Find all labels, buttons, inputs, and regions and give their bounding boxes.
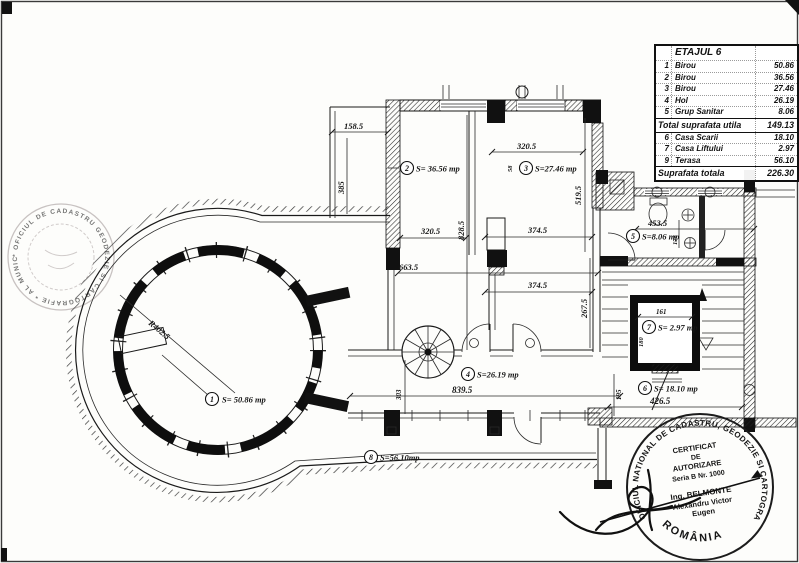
dim-374-5-b: 374.5	[527, 280, 548, 290]
dim-161: 161	[656, 308, 667, 316]
window	[440, 101, 487, 110]
room-area: S= 2.97 mp	[658, 323, 698, 333]
room-number: 2	[404, 164, 409, 173]
table-subtotal-row: Total suprafata utila 149.13	[656, 118, 797, 132]
left-stamp-ring-text: * OFICIUL DE CADASTRU GEODEZIE SI CARTOG…	[0, 0, 110, 306]
row-num: 5	[656, 108, 671, 116]
table-row: 4 Hol 26.19	[656, 95, 797, 107]
sink-fixture	[685, 238, 696, 249]
row-name: Hol	[671, 96, 755, 107]
row-num: 7	[656, 145, 671, 153]
row-num: 9	[656, 157, 671, 165]
area-schedule-table: ETAJUL 6 1 Birou 50.86 2 Birou 36.56 3 B…	[654, 44, 799, 182]
dim-320-5-top: 320.5	[516, 141, 537, 151]
row-num: 2	[656, 74, 671, 82]
table-row: 9 Terasa 56.10	[656, 155, 797, 167]
subtotal-value: 149.13	[755, 119, 797, 132]
scan-artifact	[2, 2, 12, 14]
row-value: 18.10	[755, 133, 797, 144]
dim-158-5: 158.5	[344, 121, 364, 131]
room-area: S=26.19 mp	[477, 370, 519, 380]
room-label-7: 7 S= 2.97 mp	[643, 321, 698, 334]
door-tag-circle	[470, 339, 479, 348]
floor-title: ETAJUL 6	[671, 46, 755, 60]
row-value: 36.56	[755, 73, 797, 84]
row-name: Casa Liftului	[671, 144, 755, 155]
room-number: 6	[643, 384, 647, 393]
scanned-floor-plan-sheet: * OFICIUL DE CADASTRU GEODEZIE SI CARTOG…	[0, 0, 799, 563]
table-total-row: Suprafata totala 226.30	[656, 166, 797, 180]
room-area: S=8.06 mp	[642, 232, 679, 242]
room-area: S= 18.10 mp	[654, 384, 698, 394]
dim-519-5: 519.5	[573, 185, 583, 205]
table-row: 1 Birou 50.86	[656, 60, 797, 72]
dim-453-5: 453.5	[647, 218, 668, 228]
room-number: 8	[369, 453, 373, 462]
door-arc	[513, 324, 541, 352]
upper-section-walls	[386, 100, 603, 352]
total-label: Suprafata totala	[656, 167, 755, 180]
dim-426-5: 426.5	[649, 396, 671, 406]
dim-320-5: 320.5	[420, 226, 441, 236]
room-label-3: 3 S=27.46 mp	[520, 162, 577, 175]
window	[697, 189, 723, 195]
door-arc	[514, 417, 541, 444]
row-num: 3	[656, 85, 671, 93]
row-value: 2.97	[755, 144, 797, 155]
door-arc	[462, 324, 490, 352]
dim-374-5-a: 374.5	[527, 225, 548, 235]
dim-58: 58	[507, 165, 514, 172]
row-name: Terasa	[671, 156, 755, 167]
subtotal-label: Total suprafata utila	[656, 119, 755, 132]
room-label-5: 5 S=8.06 mp	[627, 230, 680, 243]
row-value: 27.46	[755, 84, 797, 95]
row-name: Birou	[671, 84, 755, 95]
table-row: 2 Birou 36.56	[656, 72, 797, 84]
table-title-row: ETAJUL 6	[656, 46, 797, 60]
axis-ticks-top	[443, 85, 563, 99]
room-number: 4	[465, 370, 470, 379]
room-label-4: 4 S=26.19 mp	[462, 368, 519, 381]
window	[517, 101, 565, 110]
upper-terrace-strip: 158.5 385	[330, 107, 390, 218]
room-label-1: 1 S= 50.86 mp	[162, 355, 266, 406]
table-row: 3 Birou 27.46	[656, 83, 797, 95]
row-value: 50.86	[755, 61, 797, 72]
room-area: S= 50.86 mp	[222, 395, 266, 405]
row-value: 56.10	[755, 156, 797, 167]
door-tag-circle	[526, 339, 535, 348]
stamp-line1: CERTIFICAT	[672, 440, 717, 455]
row-name: Birou	[671, 61, 755, 72]
sink-fixture	[682, 209, 694, 221]
dim-267-5: 267.5	[579, 298, 589, 319]
partition-wall	[699, 196, 705, 258]
row-value: 26.19	[755, 96, 797, 107]
row-num: 6	[656, 134, 671, 142]
room-area: S= 36.56 mp	[416, 164, 460, 174]
hall-top-wall	[348, 324, 593, 356]
radius-leader-line	[120, 295, 235, 393]
row-name: Birou	[671, 73, 755, 84]
scan-artifact	[1, 548, 7, 561]
round-room: R402.5	[114, 246, 351, 455]
row-name: Grup Sanitar	[671, 107, 755, 118]
spiral-staircase-icon	[402, 326, 454, 378]
axis-tag-circle	[516, 86, 528, 98]
window	[644, 189, 670, 195]
curved-wall-segments	[118, 250, 318, 450]
row-num: 4	[656, 97, 671, 105]
stamp-romania-text: ROMÂNIA	[660, 518, 725, 544]
pillar	[384, 410, 400, 436]
dim-839-5: 839.5	[452, 385, 473, 395]
room-label-6: 6 S= 18.10 mp	[639, 382, 698, 395]
dim-195: 195	[615, 389, 623, 400]
room-area: S=56.10mp	[380, 453, 420, 463]
dim-828-5: 828.5	[456, 220, 466, 240]
room-area: S=27.46 mp	[535, 164, 577, 174]
stamp-line7: Eugen	[692, 506, 716, 518]
row-num: 1	[656, 62, 671, 70]
svg-text:ROMÂNIA: ROMÂNIA	[660, 518, 725, 544]
table-row: 5 Grup Sanitar 8.06	[656, 106, 797, 118]
room-number: 3	[523, 164, 528, 173]
scan-artifact	[785, 0, 799, 15]
dim-radius: R402.5	[146, 317, 173, 342]
table-row: 6 Casa Scarii 18.10	[656, 132, 797, 144]
table-row: 7 Casa Liftului 2.97	[656, 143, 797, 155]
pillar	[487, 410, 502, 436]
total-value: 226.30	[755, 167, 797, 180]
row-value: 8.06	[755, 107, 797, 118]
row-name: Casa Scarii	[671, 133, 755, 144]
terrace-outline	[69, 202, 612, 500]
svg-text:* OFICIUL DE CADASTRU GEODEZIE: * OFICIUL DE CADASTRU GEODEZIE SI CARTOG…	[0, 0, 110, 306]
dim-385: 385	[336, 181, 346, 196]
dim-303: 303	[395, 389, 403, 401]
door-arc	[705, 230, 725, 250]
hall-bottom-wall	[348, 408, 612, 444]
dim-180: 180	[638, 337, 645, 348]
room-label-8: 8 S=56.10mp	[365, 451, 420, 464]
dim-663-5: 663.5	[399, 262, 419, 272]
room-number: 5	[631, 232, 635, 241]
room-number: 1	[210, 395, 214, 404]
